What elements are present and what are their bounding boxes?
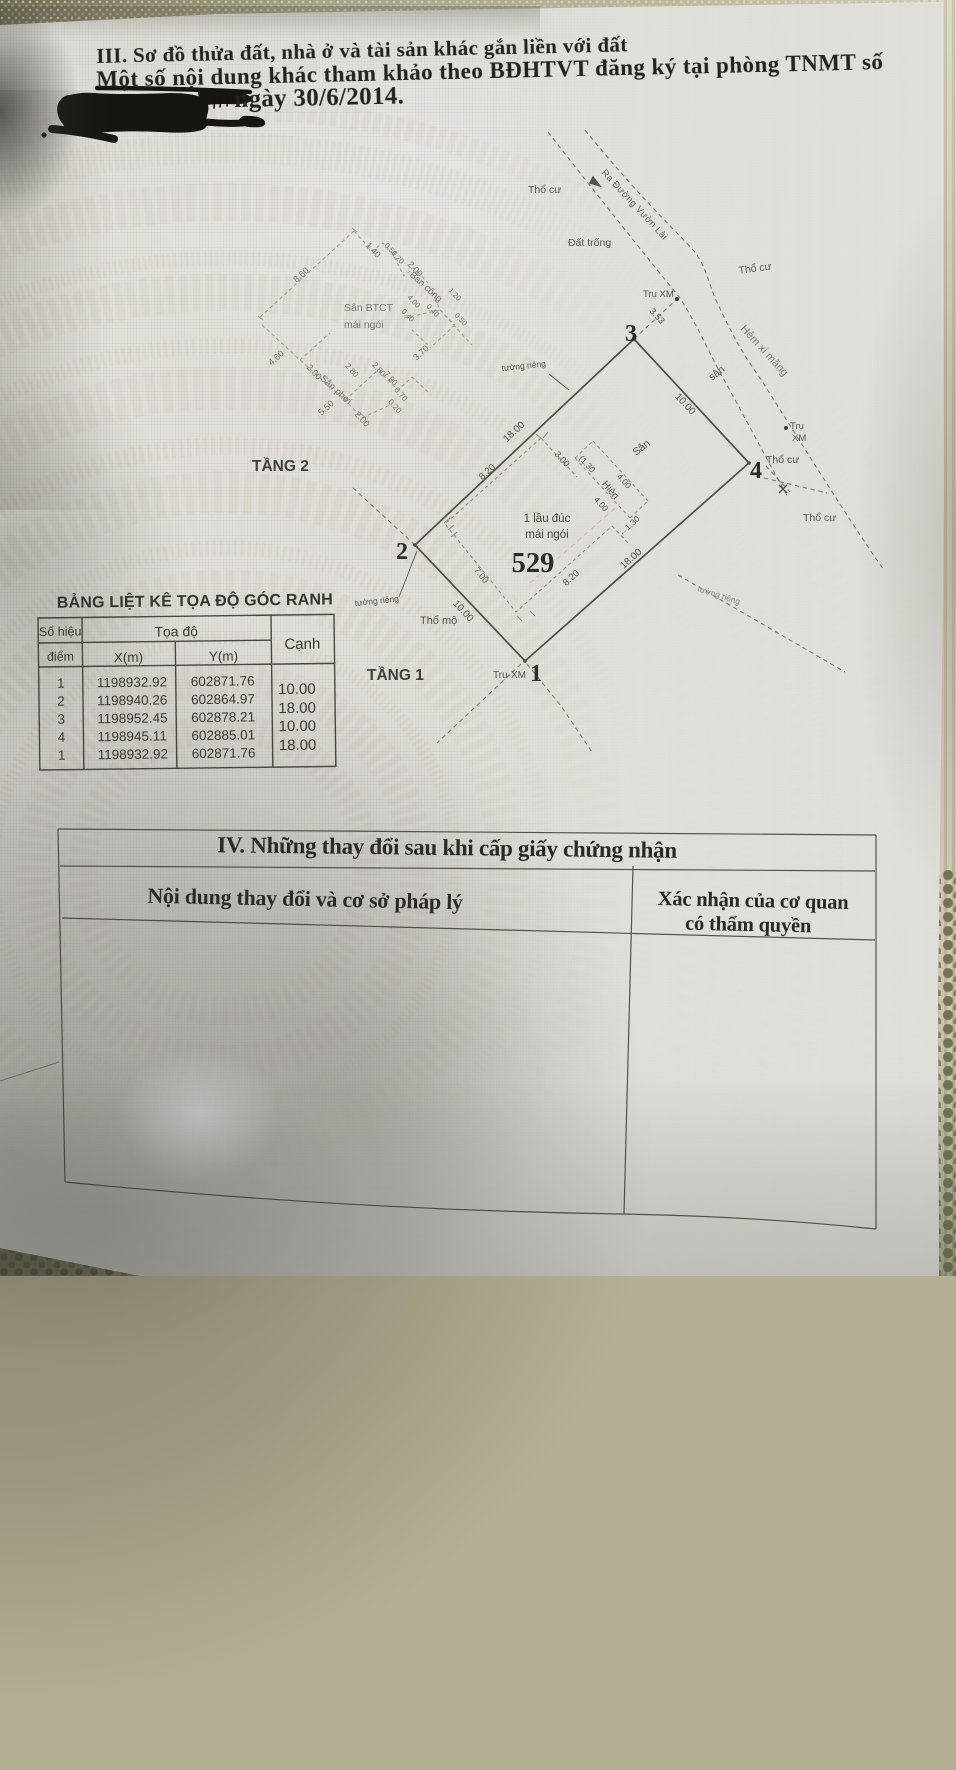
svg-text:TẦNG 1: TẦNG 1 — [367, 667, 424, 684]
svg-text:7.90: 7.90 — [382, 370, 400, 388]
svg-text:X(m): X(m) — [114, 650, 143, 665]
svg-text:18.00: 18.00 — [279, 737, 317, 754]
svg-text:mái ngói: mái ngói — [525, 529, 568, 541]
svg-text:1 lầu đúc: 1 lầu đúc — [524, 513, 571, 525]
svg-text:Thổ mộ: Thổ mộ — [420, 615, 457, 627]
svg-text:602864.97: 602864.97 — [191, 691, 255, 707]
svg-text:điểm: điểm — [47, 650, 74, 664]
svg-text:18.00: 18.00 — [278, 700, 316, 717]
svg-text:1.20: 1.20 — [390, 249, 407, 266]
svg-text:Trụ XM: Trụ XM — [643, 289, 674, 300]
svg-text:mái ngói: mái ngói — [344, 319, 384, 331]
svg-text:Trụ-XM: Trụ-XM — [493, 670, 526, 681]
svg-text:602871.76: 602871.76 — [191, 673, 255, 689]
svg-text:IV. Những thay đổi sau khi cấp: IV. Những thay đổi sau khi cấp giấy chứn… — [217, 832, 677, 863]
svg-text:Số hiệu: Số hiệu — [39, 624, 82, 639]
svg-text:1198945.11: 1198945.11 — [97, 728, 167, 744]
svg-text:Thổ cư: Thổ cư — [766, 454, 799, 466]
svg-text:4: 4 — [58, 730, 66, 745]
svg-text:602878.21: 602878.21 — [191, 709, 255, 725]
svg-text:2: 2 — [57, 694, 65, 709]
svg-text:602871.76: 602871.76 — [192, 745, 256, 761]
svg-text:1: 1 — [530, 661, 542, 687]
svg-text:2.80: 2.80 — [343, 362, 361, 380]
svg-text:10.00: 10.00 — [278, 681, 316, 698]
svg-text:1.40: 1.40 — [364, 240, 383, 260]
svg-text:Sân BTCT: Sân BTCT — [344, 302, 394, 314]
svg-text:1198932.92: 1198932.92 — [97, 674, 168, 690]
svg-text:có thẩm quyền: có thẩm quyền — [685, 913, 812, 938]
svg-text:XM: XM — [792, 433, 806, 444]
svg-text:2: 2 — [396, 539, 408, 565]
svg-text:10.00: 10.00 — [278, 718, 316, 735]
svg-text:3: 3 — [625, 321, 637, 347]
svg-text:Đất trống: Đất trống — [568, 237, 611, 249]
svg-text:Trụ: Trụ — [790, 421, 804, 432]
svg-text:1: 1 — [58, 748, 66, 763]
svg-text:Thổ cư: Thổ cư — [803, 512, 836, 524]
svg-text:Y(m): Y(m) — [209, 649, 238, 664]
svg-text:3.70: 3.70 — [411, 343, 431, 362]
svg-text:TẦNG 2: TẦNG 2 — [252, 458, 309, 475]
svg-text:tường riêng: tường riêng — [354, 593, 399, 608]
svg-text:Xác nhận của cơ quan: Xác nhận của cơ quan — [658, 888, 850, 914]
svg-text:1198932.92: 1198932.92 — [98, 746, 169, 762]
svg-text:4: 4 — [750, 458, 762, 484]
svg-text:1198952.45: 1198952.45 — [97, 710, 168, 726]
svg-text:Cạnh: Cạnh — [284, 636, 320, 653]
svg-text:602885.01: 602885.01 — [191, 727, 255, 743]
svg-text:Tọa độ: Tọa độ — [154, 623, 198, 640]
svg-text:1198940.26: 1198940.26 — [97, 692, 168, 708]
svg-text:Thổ cư: Thổ cư — [528, 184, 561, 196]
svg-text:529: 529 — [512, 548, 555, 579]
svg-text:3: 3 — [57, 712, 65, 727]
svg-text:1: 1 — [57, 676, 65, 691]
svg-text:5.50: 5.50 — [316, 398, 336, 417]
svg-text:BẢNG LIỆT KÊ TỌA ĐỘ GÓC RANH: BẢNG LIỆT KÊ TỌA ĐỘ GÓC RANH — [57, 589, 333, 611]
